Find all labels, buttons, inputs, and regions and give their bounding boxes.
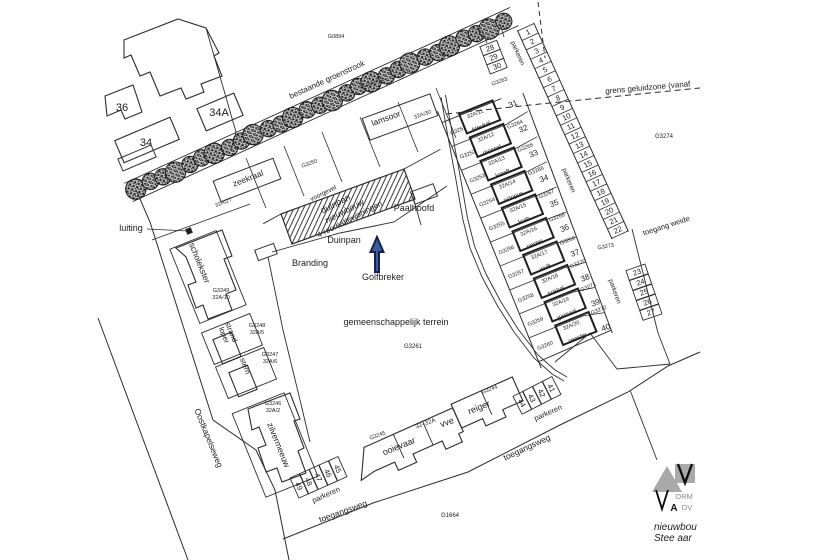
svg-text:G3274: G3274 <box>655 134 674 140</box>
svg-text:nieuwbou: nieuwbou <box>654 522 697 533</box>
svg-text:Golfbreker: Golfbreker <box>362 272 404 282</box>
svg-text:G3261: G3261 <box>404 344 423 350</box>
svg-text:32A/2: 32A/2 <box>266 408 280 414</box>
svg-text:Duinpan: Duinpan <box>327 235 361 245</box>
svg-text:32A/6: 32A/6 <box>263 359 277 365</box>
svg-text:Stee aar: Stee aar <box>654 533 692 544</box>
svg-text:34A: 34A <box>209 107 229 119</box>
svg-text:G3248: G3248 <box>249 323 266 329</box>
svg-text:36: 36 <box>116 102 128 114</box>
svg-text:DV: DV <box>682 503 692 512</box>
svg-text:A: A <box>670 503 677 514</box>
svg-text:gemeenschappelijk terrein: gemeenschappelijk terrein <box>343 317 448 327</box>
svg-text:G1664: G1664 <box>441 513 460 519</box>
svg-text:luiting: luiting <box>119 223 143 233</box>
svg-text:G0894: G0894 <box>328 34 345 40</box>
svg-text:G3247: G3247 <box>262 352 279 358</box>
svg-text:Branding: Branding <box>292 258 328 268</box>
svg-text:G3246: G3246 <box>265 401 282 407</box>
svg-text:G3249: G3249 <box>213 288 230 294</box>
svg-text:ORM: ORM <box>675 492 693 501</box>
svg-text:32A/10: 32A/10 <box>212 295 229 301</box>
svg-text:32A/5: 32A/5 <box>250 330 264 336</box>
